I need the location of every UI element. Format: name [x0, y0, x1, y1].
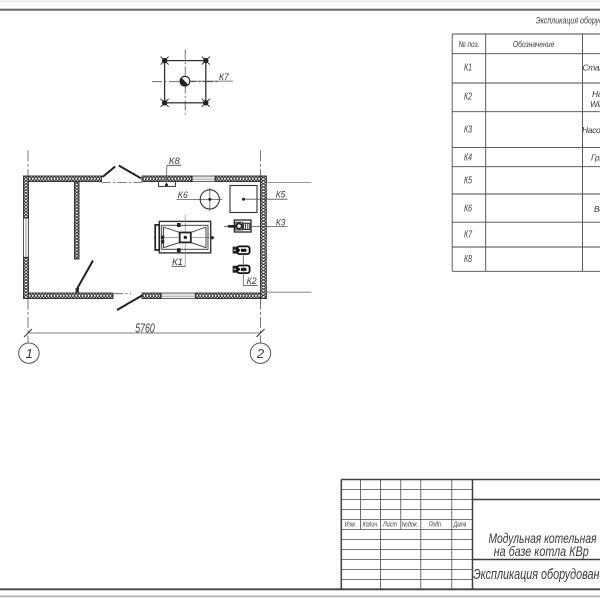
svg-text:№ поз.: № поз.: [459, 39, 480, 49]
svg-text:Вентилятор дутьевой ВД-2,7: Вентилятор дутьевой ВД-2,7: [594, 204, 600, 214]
svg-text:2: 2: [256, 346, 265, 361]
svg-text:К7: К7: [464, 230, 472, 241]
svg-text:Подп.: Подп.: [429, 521, 443, 529]
svg-text:Насос сетевой циркуляционный: Насос сетевой циркуляционный: [592, 89, 600, 99]
svg-text:К3: К3: [464, 125, 472, 136]
svg-text:К6: К6: [178, 190, 189, 201]
svg-text:Wilo TOP-S 50/10: Wilo TOP-S 50/10: [590, 99, 600, 109]
svg-text:К3: К3: [276, 217, 286, 228]
svg-text:Дата: Дата: [453, 522, 466, 529]
svg-text:К5: К5: [464, 176, 472, 187]
svg-text:К2: К2: [464, 92, 472, 103]
svg-text:К7: К7: [219, 72, 229, 83]
svg-text:К6: К6: [464, 204, 472, 215]
svg-text:1: 1: [26, 346, 33, 361]
svg-text:К5: К5: [276, 190, 286, 201]
svg-text:К4: К4: [464, 153, 472, 164]
svg-text:Стальной котел КВр-0,3-95: Стальной котел КВр-0,3-95: [583, 63, 600, 73]
svg-text:Экспликация оборудования: Экспликация оборудования: [473, 567, 600, 583]
svg-text:на базе котла КВр: на базе котла КВр: [494, 543, 589, 559]
svg-text:5760: 5760: [135, 321, 155, 335]
svg-text:Обозначение: Обозначение: [513, 39, 555, 49]
svg-text:К8: К8: [464, 254, 472, 265]
svg-text:Насос подпиточный Wilo PB-201E: Насос подпиточный Wilo PB-201EA: [582, 125, 600, 135]
svg-text:Грязевик абонентский Ду65: Грязевик абонентский Ду65: [591, 153, 600, 163]
svg-text:Лист: Лист: [382, 522, 397, 529]
svg-text:Изм.: Изм.: [345, 522, 357, 529]
svg-text:Колич.: Колич.: [363, 522, 379, 529]
svg-text:К1: К1: [464, 63, 472, 74]
svg-text:№док.: №док.: [402, 521, 419, 529]
svg-text:Экспликация оборудования: Экспликация оборудования: [536, 15, 600, 25]
